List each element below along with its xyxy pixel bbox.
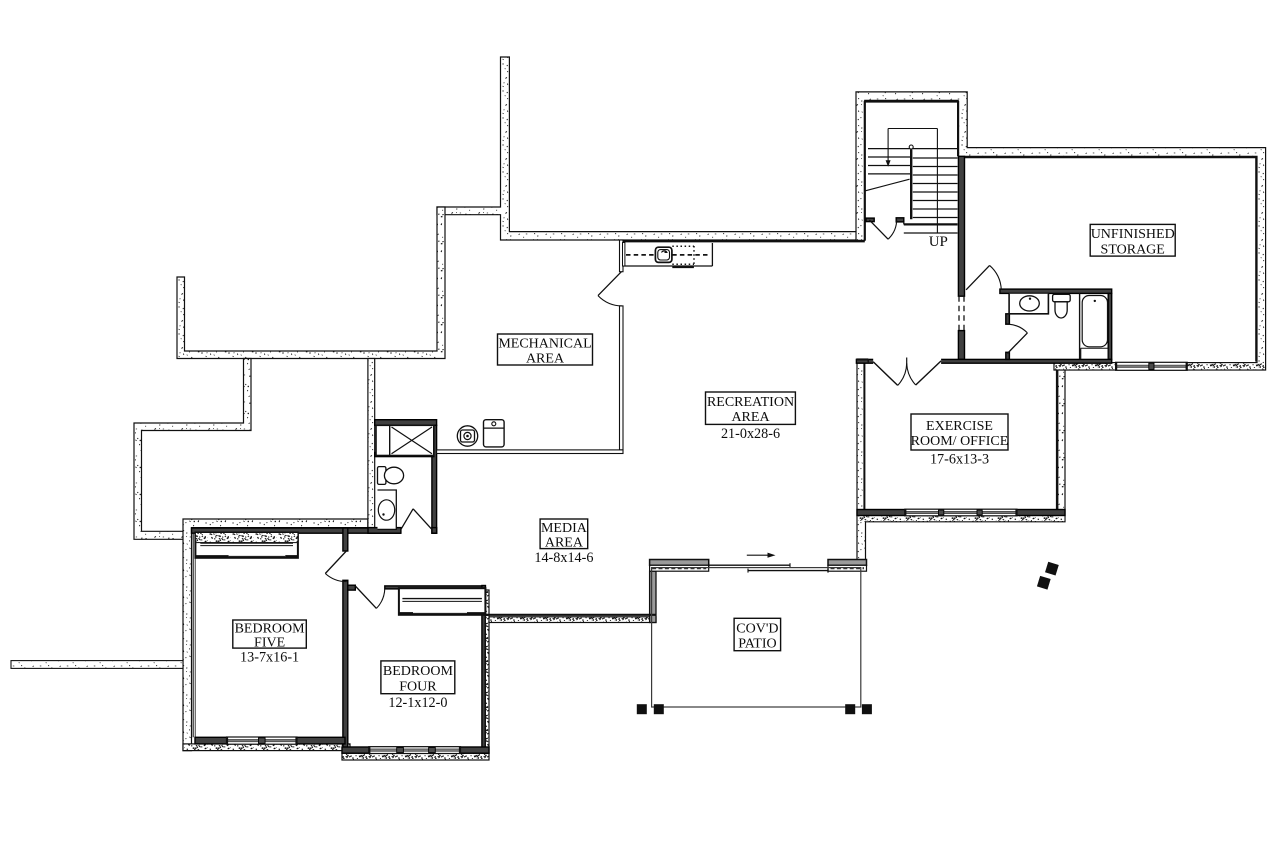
svg-text:17-6x13-3: 17-6x13-3 [930,452,989,468]
svg-text:AREA: AREA [731,410,770,425]
svg-text:AREA: AREA [526,352,565,367]
svg-text:RECREATION: RECREATION [707,395,794,410]
svg-text:ROOM/ OFFICE: ROOM/ OFFICE [911,434,1009,449]
svg-text:UNFINISHED: UNFINISHED [1091,227,1175,242]
svg-text:STORAGE: STORAGE [1101,242,1165,257]
svg-text:FIVE: FIVE [254,635,285,650]
svg-text:AREA: AREA [545,536,584,551]
svg-text:12-1x12-0: 12-1x12-0 [388,695,447,711]
svg-text:14-8x14-6: 14-8x14-6 [534,550,593,566]
svg-text:UP: UP [929,234,948,250]
svg-text:COV'D: COV'D [736,621,778,636]
svg-text:MECHANICAL: MECHANICAL [498,336,591,351]
svg-text:MEDIA: MEDIA [541,521,588,536]
svg-text:BEDROOM: BEDROOM [235,622,306,637]
svg-text:EXERCISE: EXERCISE [926,419,993,434]
svg-text:21-0x28-6: 21-0x28-6 [721,426,780,442]
svg-text:BEDROOM: BEDROOM [383,664,454,679]
svg-text:PATIO: PATIO [738,637,776,652]
svg-text:13-7x16-1: 13-7x16-1 [240,650,299,666]
svg-text:FOUR: FOUR [399,679,437,694]
